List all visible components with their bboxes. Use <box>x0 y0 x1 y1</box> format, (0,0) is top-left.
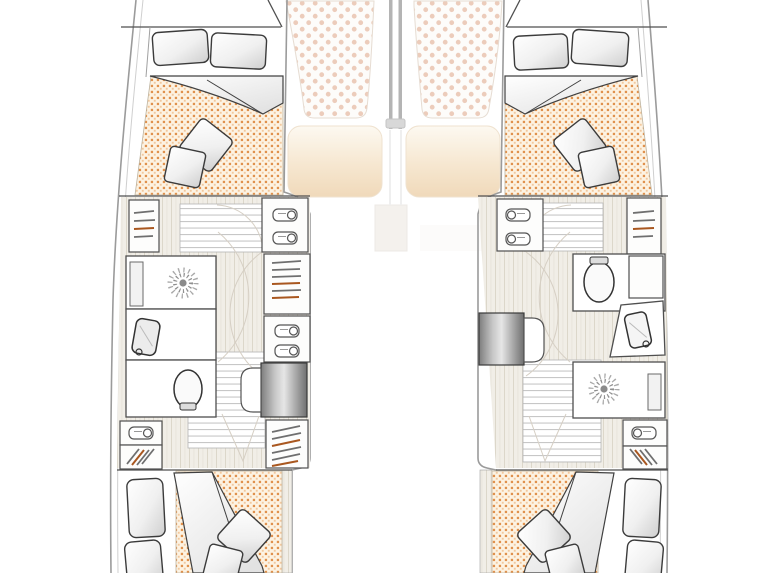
port-fwd-pillow-2 <box>210 33 267 70</box>
port-companionway-stairs <box>241 363 307 417</box>
starboard-aft-cabin <box>492 471 664 573</box>
starboard-hull <box>478 0 668 573</box>
starboard-wardrobe-forward <box>627 198 661 254</box>
port-toilet <box>174 370 202 408</box>
port-toilet-room <box>126 360 216 417</box>
starboard-aft-pillow-2 <box>624 540 664 573</box>
starboard-landing-seat <box>524 318 544 362</box>
starboard-shower <box>573 362 665 418</box>
starboard-toilet <box>584 262 614 302</box>
starboard-towel-locker-aft <box>623 420 667 446</box>
port-aft-pillow-1 <box>127 478 166 538</box>
starboard-forward-cabin <box>505 29 652 195</box>
port-locker-forward <box>262 198 308 252</box>
starboard-trampoline-net <box>414 1 502 118</box>
port-aft-cabin <box>124 471 282 573</box>
port-wardrobe-mid <box>264 254 310 314</box>
starboard-shower-bench <box>648 374 661 410</box>
port-fwd-pillow-1 <box>152 29 209 66</box>
starboard-closet <box>629 256 663 298</box>
port-washbasin <box>131 318 161 357</box>
starboard-aft-pillow-1 <box>623 478 662 538</box>
port-landing-seat <box>241 368 261 412</box>
port-wardrobe-aft-inboard <box>266 420 308 468</box>
starboard-fwd-pillow-2 <box>571 29 629 67</box>
port-shower <box>126 256 216 309</box>
starboard-fwd-throw-pillow-2 <box>578 146 621 189</box>
port-aft-pillow-2 <box>124 540 164 573</box>
starboard-wardrobe-aft-outboard <box>623 446 667 469</box>
starboard-foredeck-cushion <box>406 126 500 197</box>
floorplan-canvas <box>0 0 764 573</box>
port-fwd-steps <box>180 204 264 252</box>
starboard-locker-forward <box>497 199 543 251</box>
forebeam <box>386 0 405 129</box>
port-towel-locker-aft <box>120 421 162 445</box>
catamaran-floorplan <box>0 0 764 573</box>
starboard-companionway-stairs <box>479 313 544 365</box>
port-foredeck-cushion <box>288 126 382 197</box>
port-fwd-throw-pillow-2 <box>164 146 207 189</box>
starboard-fwd-pillow-1 <box>513 34 569 71</box>
port-aft-wood-strip <box>282 470 292 573</box>
port-shower-bench <box>130 262 143 306</box>
starboard-aft-wood-strip <box>480 470 492 573</box>
port-wardrobe-forward <box>129 200 159 252</box>
port-vanity <box>126 309 216 360</box>
port-hull <box>111 0 310 573</box>
bow-area <box>286 0 510 251</box>
port-forward-cabin <box>135 29 283 195</box>
port-trampoline-net <box>286 1 374 118</box>
port-midship <box>120 198 310 469</box>
port-locker-aft-inboard <box>264 316 310 362</box>
port-wardrobe-aft-outboard <box>120 445 162 469</box>
